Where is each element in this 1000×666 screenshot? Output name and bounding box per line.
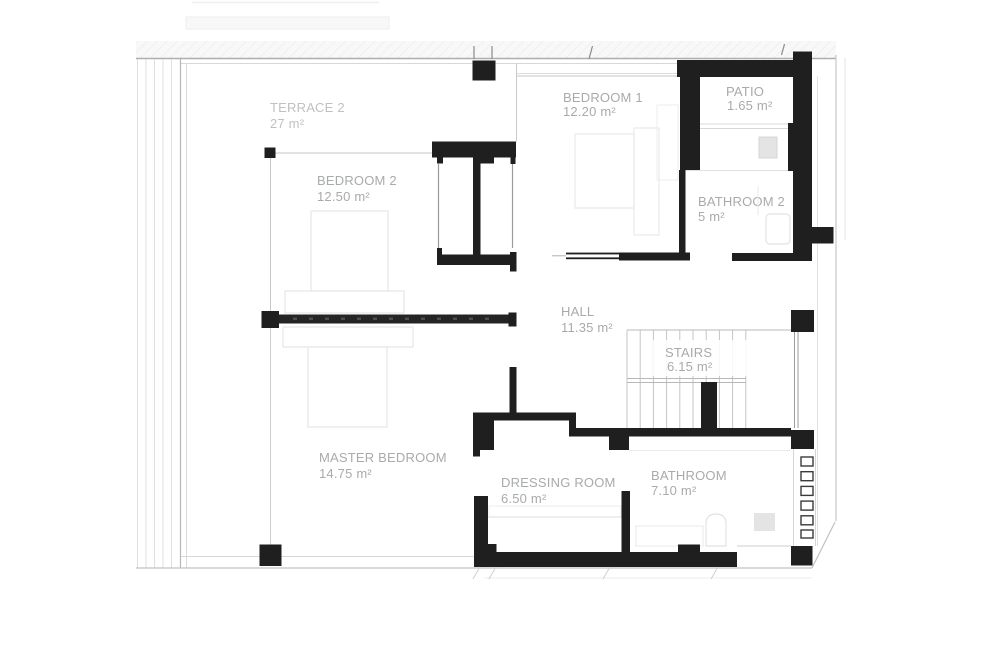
svg-text:HALL: HALL	[561, 304, 594, 319]
svg-text:STAIRS: STAIRS	[665, 345, 712, 360]
svg-text:BATHROOM: BATHROOM	[651, 468, 727, 483]
svg-text:MASTER BEDROOM: MASTER BEDROOM	[319, 450, 447, 465]
svg-text:5 m²: 5 m²	[698, 209, 725, 224]
svg-text:6.15 m²: 6.15 m²	[667, 359, 713, 374]
svg-text:6.50 m²: 6.50 m²	[501, 491, 547, 506]
svg-text:1.65 m²: 1.65 m²	[727, 98, 773, 113]
svg-text:12.50 m²: 12.50 m²	[317, 189, 370, 204]
svg-text:TERRACE 2: TERRACE 2	[270, 100, 345, 115]
svg-text:12.20 m²: 12.20 m²	[563, 104, 616, 119]
svg-text:BATHROOM 2: BATHROOM 2	[698, 194, 785, 209]
svg-text:BEDROOM 1: BEDROOM 1	[563, 90, 643, 105]
svg-text:7.10 m²: 7.10 m²	[651, 483, 697, 498]
svg-text:DRESSING ROOM: DRESSING ROOM	[501, 475, 616, 490]
svg-text:14.75 m²: 14.75 m²	[319, 466, 372, 481]
svg-text:11.35 m²: 11.35 m²	[561, 320, 613, 335]
svg-text:BEDROOM 2: BEDROOM 2	[317, 173, 397, 188]
svg-text:27 m²: 27 m²	[270, 116, 305, 131]
svg-text:PATIO: PATIO	[726, 84, 764, 99]
